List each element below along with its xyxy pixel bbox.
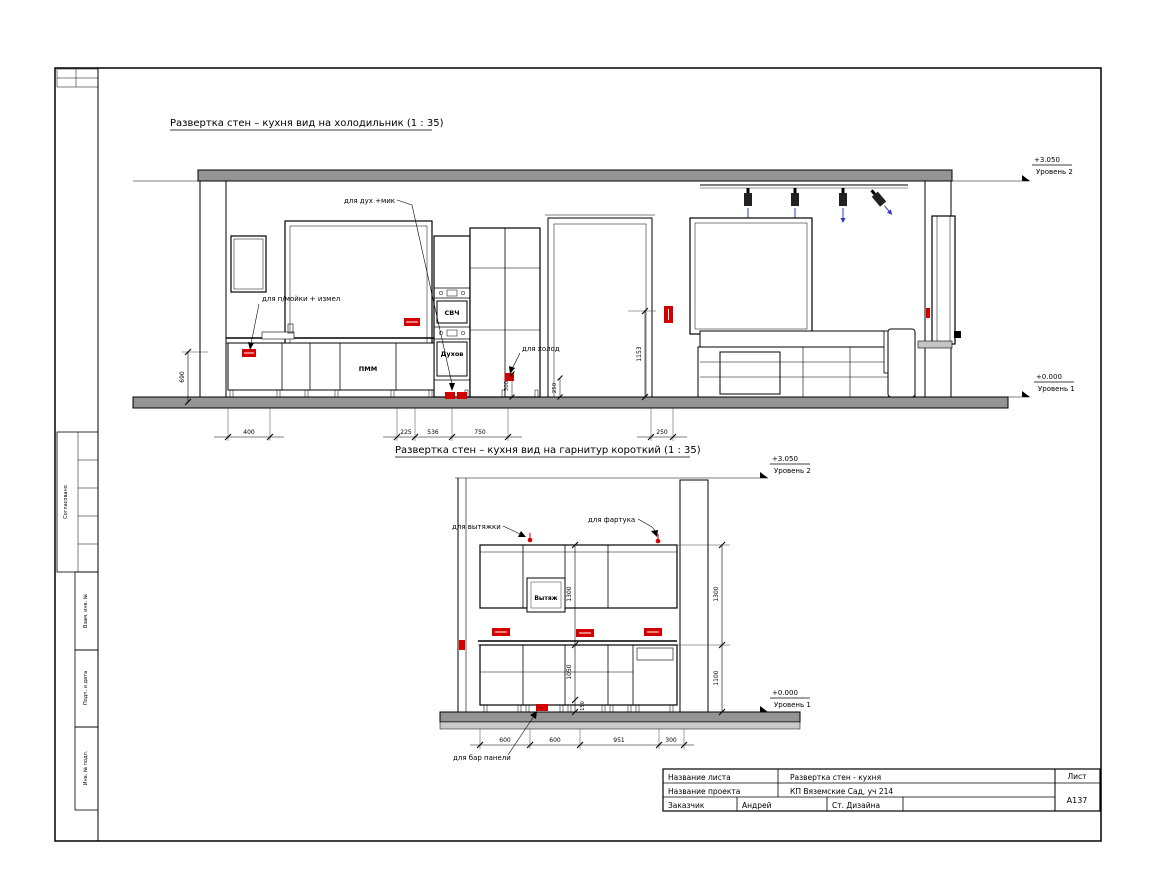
view2-title: Развертка стен – кухня вид на гарнитур к… xyxy=(395,445,701,456)
ceiling-socket-dot xyxy=(528,533,533,542)
drawing-sheet: Согласовано Взам. инв. № Подп. и дата Ин… xyxy=(0,0,1155,893)
dim-951: 951 xyxy=(613,737,625,744)
level2-marker: +3.050 Уровень 2 xyxy=(760,455,811,478)
annotation-hood: для вытяжки xyxy=(452,523,526,537)
base-cabinets xyxy=(478,641,677,712)
level-arrow-icon xyxy=(760,472,768,478)
track-light-icon xyxy=(839,188,847,223)
left-wall xyxy=(200,181,226,397)
socket-marker xyxy=(445,392,455,399)
stamp-podp-label: Подп. и дата xyxy=(83,671,89,705)
level1-name: Уровень 1 xyxy=(774,701,811,709)
sheet-label: Лист xyxy=(1067,772,1087,781)
stamp-side-cells: Взам. инв. № Подп. и дата Инв. № подл. xyxy=(75,572,98,810)
oven-label: Духов xyxy=(441,350,464,358)
level2-value: +3.050 xyxy=(1034,156,1060,164)
dim-250: 250 xyxy=(656,429,668,436)
cabinet-legs xyxy=(484,705,673,712)
level-arrow-icon xyxy=(1022,175,1030,181)
arrowhead-icon xyxy=(518,531,526,537)
right-wall-door xyxy=(918,216,961,348)
stamp-inv-label: Инв. № подл. xyxy=(83,750,89,785)
right-wall xyxy=(680,480,708,712)
annotation-apron: для фартука xyxy=(588,516,658,537)
floor-slab xyxy=(440,712,800,722)
level1-marker: +0.000 Уровень 1 xyxy=(1022,373,1075,397)
dim-690: 690 xyxy=(179,371,186,383)
microwave-label: СВЧ xyxy=(445,309,460,317)
level1-name: Уровень 1 xyxy=(1038,385,1075,393)
sheet-canvas: Согласовано Взам. инв. № Подп. и дата Ин… xyxy=(0,0,1155,893)
view1-title: Развертка стен – кухня вид на холодильни… xyxy=(170,118,444,129)
floor-slab xyxy=(133,397,1008,408)
level1-value: +0.000 xyxy=(772,689,798,697)
client-value: Андрей xyxy=(742,801,772,810)
level2-name: Уровень 2 xyxy=(1036,168,1073,176)
annotation-apron-text: для фартука xyxy=(588,516,635,524)
socket-marker xyxy=(457,392,467,399)
level2-marker: +3.050 Уровень 2 xyxy=(1022,156,1073,181)
tall-cabinet-fridge xyxy=(470,228,540,397)
ceiling-slab xyxy=(198,170,952,181)
level-arrow-icon xyxy=(760,706,768,712)
door-opening xyxy=(545,215,655,397)
tv-panel xyxy=(690,218,823,338)
dim-1050: 1050 xyxy=(566,664,573,679)
dim-150: 150 xyxy=(580,701,586,711)
view2-elevation: Развертка стен – кухня вид на гарнитур к… xyxy=(395,445,811,762)
dim-600a: 600 xyxy=(499,737,511,744)
stamp-approved-label: Согласовано xyxy=(63,485,69,519)
socket-marker xyxy=(459,640,465,650)
sofa xyxy=(698,329,915,397)
annotation-oven-text: для дух +мик xyxy=(344,197,395,205)
stamp-approved-block: Согласовано xyxy=(57,432,98,572)
socket-marker xyxy=(926,308,930,318)
annotation-sink-text: для п/мойки + измел xyxy=(262,295,340,303)
studio-value: Ст. Дизайна xyxy=(832,801,880,810)
dim-300: 300 xyxy=(504,380,510,391)
sheet-name-label: Название листа xyxy=(668,773,731,782)
stamp-vzam-label: Взам. инв. № xyxy=(83,593,89,628)
level-arrow-icon xyxy=(1022,391,1030,397)
dim-1100: 1100 xyxy=(713,670,720,685)
socket-marker xyxy=(536,704,548,711)
annotation-bar-text: для бар панели xyxy=(453,754,511,762)
dim-250b: 250 xyxy=(552,382,558,393)
dim-300b: 300 xyxy=(665,737,677,744)
appliance-tower: СВЧ Духов xyxy=(434,236,470,397)
socket-marker xyxy=(505,373,514,381)
title-block: Название листа Развертка стен - кухня Ли… xyxy=(663,769,1100,811)
window-panel xyxy=(285,221,432,352)
door-handle-icon xyxy=(954,331,961,338)
level2-name: Уровень 2 xyxy=(774,467,811,475)
track-lighting xyxy=(700,185,908,223)
upper-cabinet xyxy=(231,236,266,292)
dim-400: 400 xyxy=(243,429,255,436)
level1-marker: +0.000 Уровень 1 xyxy=(710,689,811,712)
view1-elevation: Развертка стен – кухня вид на холодильни… xyxy=(133,118,1075,441)
dim-225: 225 xyxy=(400,429,412,436)
hood-label: Вытяж xyxy=(534,595,557,602)
dim-1300-inner: 1300 xyxy=(566,586,573,601)
level1-value: +0.000 xyxy=(1036,373,1062,381)
annotation-fridge-text: для холод xyxy=(522,345,560,353)
sheet-number: А137 xyxy=(1067,796,1088,805)
sheet-name-value: Развертка стен - кухня xyxy=(790,773,881,782)
dim-600b: 600 xyxy=(549,737,561,744)
level2-value: +3.050 xyxy=(772,455,798,463)
dim-1153: 1153 xyxy=(636,346,643,361)
annotation-hood-text: для вытяжки xyxy=(452,523,501,531)
dim-750: 750 xyxy=(474,429,486,436)
upper-cabinets: Вытяж xyxy=(480,545,677,612)
dim-1300-right: 1300 xyxy=(713,586,720,601)
track-light-angled-icon xyxy=(869,188,896,218)
arrowhead-icon xyxy=(651,530,658,537)
project-name-label: Название проекта xyxy=(668,787,740,796)
dim-536: 536 xyxy=(427,429,439,436)
dishwasher-label: ПММ xyxy=(359,365,377,373)
client-label: Заказчик xyxy=(668,801,705,810)
project-name-value: КП Вяземские Сад, уч 214 xyxy=(790,787,893,796)
sofa-armrest xyxy=(888,329,915,397)
floor-screed xyxy=(440,722,800,729)
window-sill xyxy=(918,341,952,348)
